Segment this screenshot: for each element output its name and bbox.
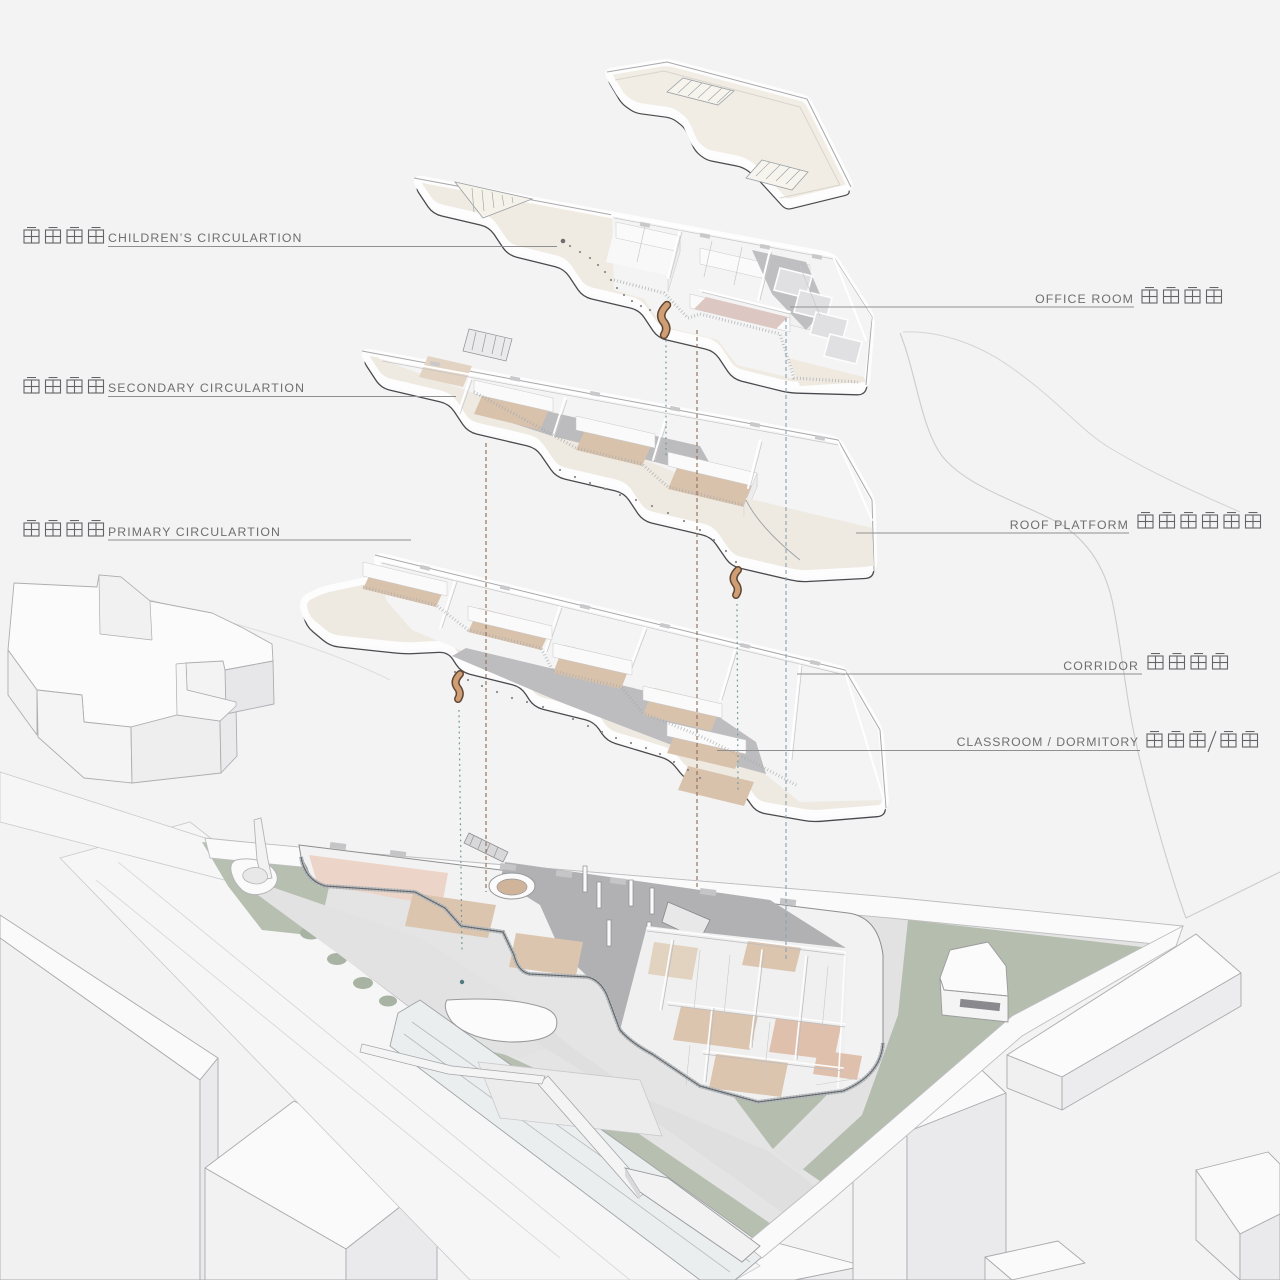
svg-text:CORRIDOR: CORRIDOR: [1063, 659, 1139, 673]
svg-text:PRIMARY CIRCULARTION: PRIMARY CIRCULARTION: [108, 525, 281, 539]
svg-text:OFFICE ROOM: OFFICE ROOM: [1035, 292, 1134, 306]
svg-text:SECONDARY CIRCULARTION: SECONDARY CIRCULARTION: [108, 381, 305, 395]
svg-text:CLASSROOM / DORMITORY: CLASSROOM / DORMITORY: [957, 735, 1139, 749]
svg-text:CHILDREN’S CIRCULARTION: CHILDREN’S CIRCULARTION: [108, 231, 303, 245]
svg-text:ROOF PLATFORM: ROOF PLATFORM: [1010, 518, 1129, 532]
